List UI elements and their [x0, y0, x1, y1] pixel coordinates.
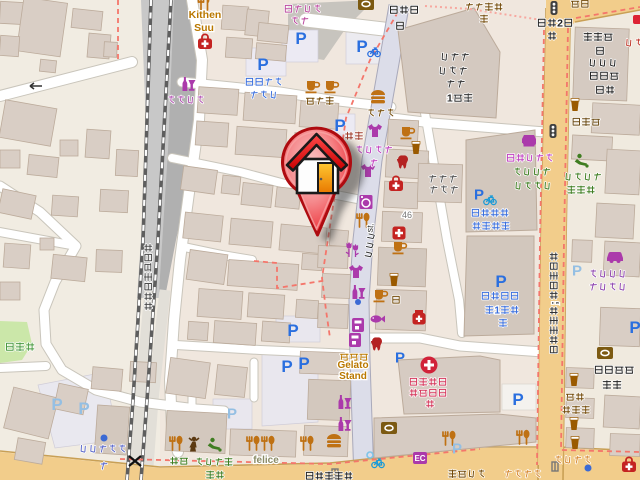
svg-text:P: P	[474, 186, 484, 203]
svg-text:P: P	[257, 55, 268, 74]
svg-text:P: P	[295, 29, 306, 48]
svg-text:felice: felice	[253, 455, 279, 466]
svg-text:P: P	[298, 354, 309, 373]
svg-text:P: P	[629, 318, 640, 337]
svg-text:P: P	[572, 262, 582, 279]
svg-text:Stand: Stand	[339, 371, 367, 382]
svg-text:P: P	[78, 399, 89, 418]
svg-text:P: P	[395, 349, 405, 366]
svg-text:P: P	[495, 272, 506, 291]
svg-text:Kithen: Kithen	[189, 9, 222, 21]
svg-text:P: P	[287, 321, 298, 340]
svg-text:P: P	[452, 440, 462, 457]
svg-text:P: P	[51, 395, 62, 414]
svg-text:st.: st.	[364, 222, 375, 233]
svg-text:;: ;	[549, 301, 560, 304]
svg-text:P: P	[281, 357, 292, 376]
svg-text:P: P	[227, 405, 237, 422]
svg-text:1: 1	[447, 93, 453, 105]
svg-text:1: 1	[494, 305, 500, 316]
svg-text:P: P	[512, 390, 523, 409]
svg-text:Gelato: Gelato	[337, 360, 368, 371]
svg-text:P: P	[334, 116, 345, 135]
svg-text:46: 46	[402, 210, 412, 220]
svg-text:2: 2	[557, 18, 563, 30]
svg-text:Suu: Suu	[194, 22, 214, 34]
svg-text:EC: EC	[414, 454, 425, 463]
svg-text:P: P	[356, 37, 367, 56]
